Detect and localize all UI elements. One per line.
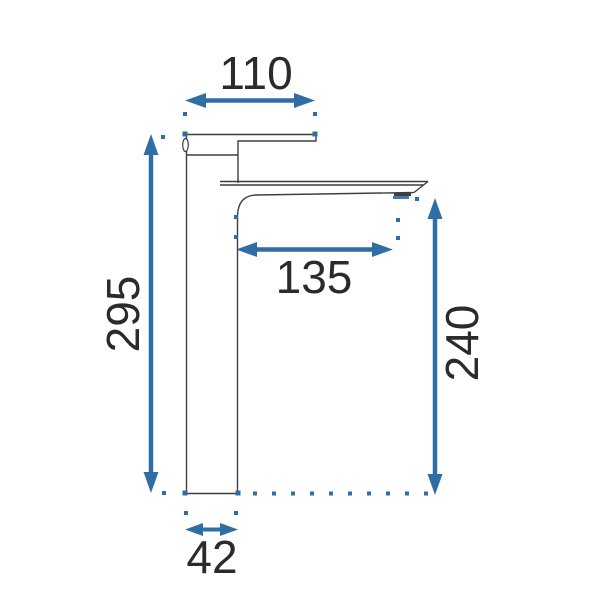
arrowhead-down (428, 474, 443, 495)
dimension-value-295: 295 (97, 276, 149, 353)
extension-dot (234, 235, 238, 239)
extension-dot (415, 197, 419, 201)
arrowhead-left (236, 242, 257, 257)
extension-dot (367, 492, 371, 496)
arrowhead-left (185, 93, 206, 108)
extension-dot (253, 492, 257, 496)
dimension-value-42: 42 (186, 531, 237, 583)
faucet-body-and-handle-outline (187, 135, 429, 494)
extension-dot (386, 492, 390, 496)
corner-marker (183, 491, 188, 496)
arrowhead-right (372, 242, 393, 257)
extension-dot (291, 492, 295, 496)
dimension-total-height: 295 (97, 134, 166, 495)
faucet-outline-drawing (183, 135, 428, 494)
dimension-value-135: 135 (276, 251, 353, 303)
arrowhead-up (428, 198, 443, 219)
extension-dot (329, 492, 333, 496)
extension-dot (272, 492, 276, 496)
extension-dot (234, 215, 238, 219)
dimension-value-110: 110 (219, 47, 292, 99)
corner-marker (313, 132, 318, 137)
arrowhead-down (144, 472, 159, 493)
extension-dot (405, 492, 409, 496)
corner-marker (236, 491, 241, 496)
dimension-base-width: 42 (183, 491, 241, 584)
extension-dot (183, 112, 187, 116)
extension-dot (396, 236, 400, 240)
aerator (394, 193, 411, 197)
water-outlet-mark (393, 196, 409, 199)
arrowhead-right (294, 93, 315, 108)
dimension-value-240: 240 (436, 305, 488, 382)
faucet-dimension-diagram: 110 295 135 240 (0, 0, 608, 600)
dimension-outlet-height: 240 (253, 197, 488, 496)
dimension-spout-top-width: 110 (183, 47, 318, 137)
extension-dot (424, 492, 428, 496)
dimension-spout-reach: 135 (234, 215, 400, 303)
extension-dot (184, 511, 188, 515)
diagram-canvas: 110 295 135 240 (0, 0, 608, 600)
extension-dot (162, 491, 166, 495)
arrowhead-up (144, 134, 159, 155)
extension-dot (313, 112, 317, 116)
handle-pivot (183, 139, 189, 152)
extension-dot (310, 492, 314, 496)
extension-dot (348, 492, 352, 496)
extension-dot (161, 135, 165, 139)
corner-marker (183, 132, 188, 137)
extension-dot (396, 218, 400, 222)
extension-dot (234, 511, 238, 515)
